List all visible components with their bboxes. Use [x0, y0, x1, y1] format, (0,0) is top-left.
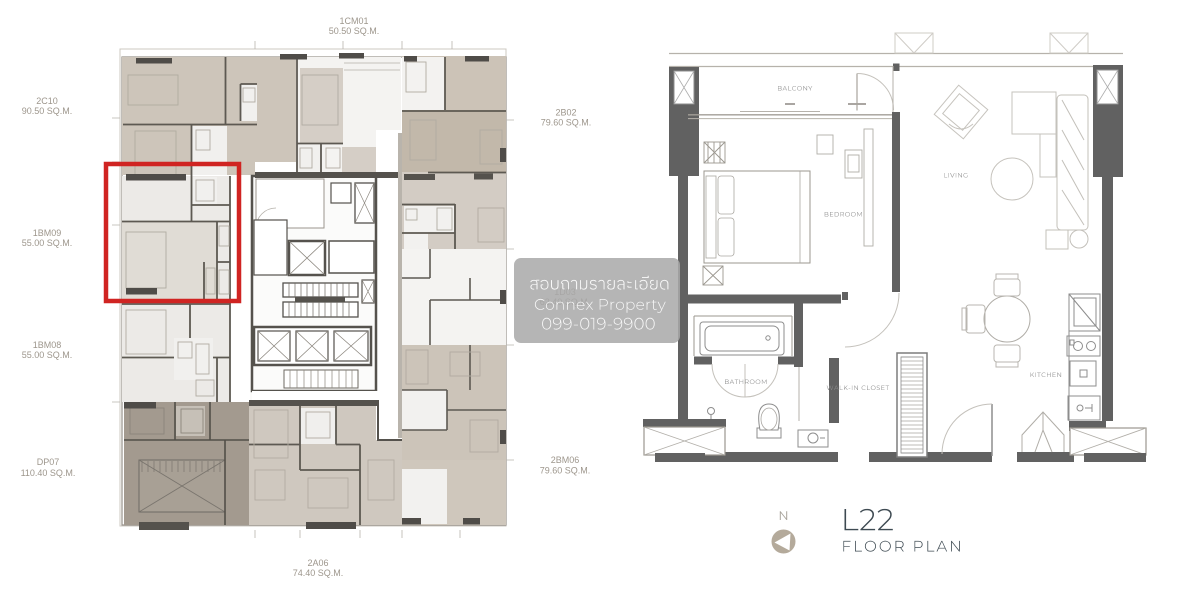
- svg-text:110.40 SQ.M.: 110.40 SQ.M.: [21, 468, 76, 478]
- svg-text:2BM06: 2BM06: [551, 455, 580, 465]
- svg-text:55.00 SQ.M.: 55.00 SQ.M.: [22, 350, 73, 360]
- svg-text:79.60 SQ.M.: 79.60 SQ.M.: [541, 118, 592, 128]
- svg-text:74.40 SQ.M.: 74.40 SQ.M.: [293, 568, 344, 578]
- svg-text:1BM09: 1BM09: [33, 228, 62, 238]
- svg-text:2B02: 2B02: [555, 108, 576, 118]
- svg-text:1CM01: 1CM01: [339, 16, 368, 26]
- svg-text:79.60 SQ.M.: 79.60 SQ.M.: [540, 466, 591, 476]
- svg-text:90.50 SQ.M.: 90.50 SQ.M.: [22, 106, 73, 116]
- svg-text:55.00 SQ.M.: 55.00 SQ.M.: [22, 238, 73, 248]
- svg-text:50.50 SQ.M.: 50.50 SQ.M.: [329, 26, 380, 36]
- svg-text:1BM08: 1BM08: [33, 340, 62, 350]
- svg-text:DP07: DP07: [37, 457, 60, 467]
- svg-text:2C10: 2C10: [36, 96, 58, 106]
- svg-text:2A06: 2A06: [307, 558, 328, 568]
